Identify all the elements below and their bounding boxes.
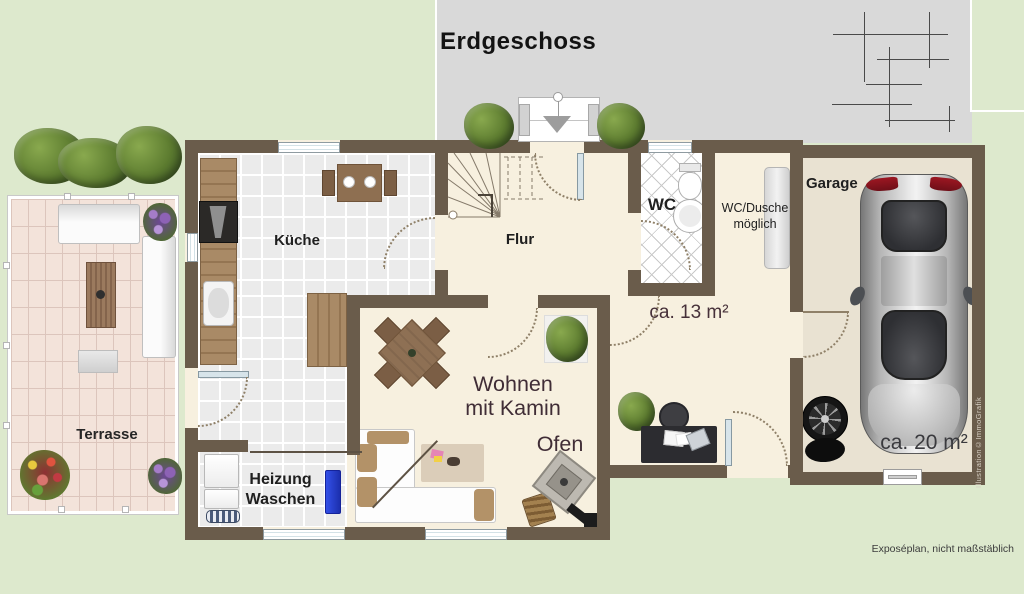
car-windshield (881, 310, 947, 380)
site-line (885, 120, 955, 121)
room-label-wc: WC (638, 195, 686, 215)
terrace-table-knob (96, 290, 105, 299)
railing-post (64, 193, 71, 200)
window-utility (263, 529, 345, 540)
room-label-terrasse: Terrasse (47, 426, 167, 443)
wohnen-line2: mit Kamin (428, 396, 598, 420)
site-line (949, 106, 950, 132)
wall-living-east (597, 295, 610, 540)
site-line (833, 34, 948, 35)
watermark: Illustration©ImmoGrafik (974, 376, 986, 488)
window-kitchen (278, 142, 340, 153)
railing-post (3, 262, 10, 269)
terrace-flowers-left (20, 450, 70, 500)
site-line (929, 12, 930, 68)
wall-office-south (610, 465, 727, 478)
wall-garage-top (803, 145, 985, 158)
railing-post (3, 422, 10, 429)
window-terrace (187, 233, 198, 262)
garage-door (883, 469, 922, 485)
area-label-office: ca. 13 m² (629, 302, 749, 324)
staircase (448, 153, 545, 230)
heizung-line1: Heizung (208, 470, 353, 490)
terrace-sofa-right (142, 236, 176, 358)
wall-house-east (790, 358, 803, 485)
tire-hub (821, 415, 829, 423)
wall-bottom (185, 527, 263, 540)
wall-utility-stub (198, 440, 248, 452)
office-exit-door-leaf (725, 419, 732, 466)
room-label-heizung: Heizung Waschen (208, 470, 353, 510)
sofa-cushion (474, 489, 494, 521)
sofa-cushion (357, 444, 377, 472)
terrace-sofa-top (58, 204, 140, 244)
wohnen-line1: Wohnen (428, 372, 598, 396)
tire-below (804, 437, 846, 464)
site-line (832, 104, 912, 105)
toilet-tank (679, 163, 701, 172)
entrance-bush-left (464, 103, 514, 149)
page-title: Erdgeschoss (440, 28, 680, 58)
wall-living-west (347, 295, 360, 455)
car-rear-window (881, 200, 947, 252)
wall-living-top (347, 295, 488, 308)
plate-icon (343, 176, 355, 188)
window-living (425, 529, 507, 540)
car (856, 170, 972, 458)
entrance-arrow-icon (543, 116, 571, 133)
wall-top (185, 140, 278, 153)
wall-left (185, 428, 198, 540)
tire-stack (802, 396, 850, 466)
kitchen-chair-left (322, 170, 335, 196)
railing-post (122, 506, 129, 513)
entrance-bush-right (597, 103, 645, 149)
railing-post (58, 506, 65, 513)
wall-left (185, 140, 198, 233)
terrace-flowerpot (143, 203, 177, 241)
sofa-cushion (357, 477, 377, 507)
driveway (435, 0, 972, 143)
wall-top (692, 140, 803, 153)
room-label-kueche: Küche (227, 232, 367, 249)
wc-dusche-line2: möglich (712, 216, 798, 232)
entrance-side-left (519, 104, 530, 136)
site-line (889, 47, 890, 127)
label-ofen: Ofen (515, 432, 605, 457)
wall-wc-west (628, 270, 641, 283)
lawn-corner (970, 0, 1024, 112)
room-label-wc-dusche: WC/Dusche möglich (712, 200, 798, 233)
kitchen-sink-basin (208, 288, 229, 318)
kitchen-chair-right (384, 170, 397, 196)
hedge-bush (116, 126, 182, 184)
wall-bottom (345, 527, 425, 540)
dining-table-center (408, 349, 416, 357)
wc-dusche-line1: WC/Dusche (712, 200, 798, 216)
floorplan-canvas: Erdgeschoss Küche Flur WC WC/Dusche mögl… (0, 0, 1024, 594)
railing-post (128, 193, 135, 200)
sofa-cushion (367, 431, 409, 444)
kitchen-island-counter (307, 293, 347, 367)
railing-post (3, 342, 10, 349)
living-plant (546, 316, 588, 362)
wall-left (185, 262, 198, 368)
wall-kitchen-hall (435, 153, 448, 215)
area-label-garage: ca. 20 m² (869, 431, 979, 455)
terrace-flowers-right (148, 458, 182, 494)
plate-icon (364, 176, 376, 188)
laundry-mat (206, 510, 240, 523)
room-label-garage: Garage (806, 175, 886, 192)
site-line (864, 12, 865, 82)
site-line (866, 84, 922, 85)
disclaimer: Exposéplan, nicht maßstäblich (700, 543, 1014, 555)
utility-partition-line (250, 451, 362, 453)
car-roof (881, 256, 947, 306)
site-line (877, 59, 949, 60)
heizung-line2: Waschen (208, 490, 353, 510)
wall-bottom (507, 527, 610, 540)
garage-door-bar (888, 475, 917, 479)
room-label-flur: Flur (460, 231, 580, 248)
toy (447, 457, 460, 466)
kitchen-counter (200, 158, 237, 365)
terrace-bench (78, 350, 118, 373)
room-label-wohnen: Wohnen mit Kamin (428, 372, 598, 420)
toy (434, 456, 442, 462)
window-wc (648, 142, 692, 153)
wall-kitchen-hall (435, 270, 448, 295)
entrance-lamp-stem (558, 101, 559, 118)
